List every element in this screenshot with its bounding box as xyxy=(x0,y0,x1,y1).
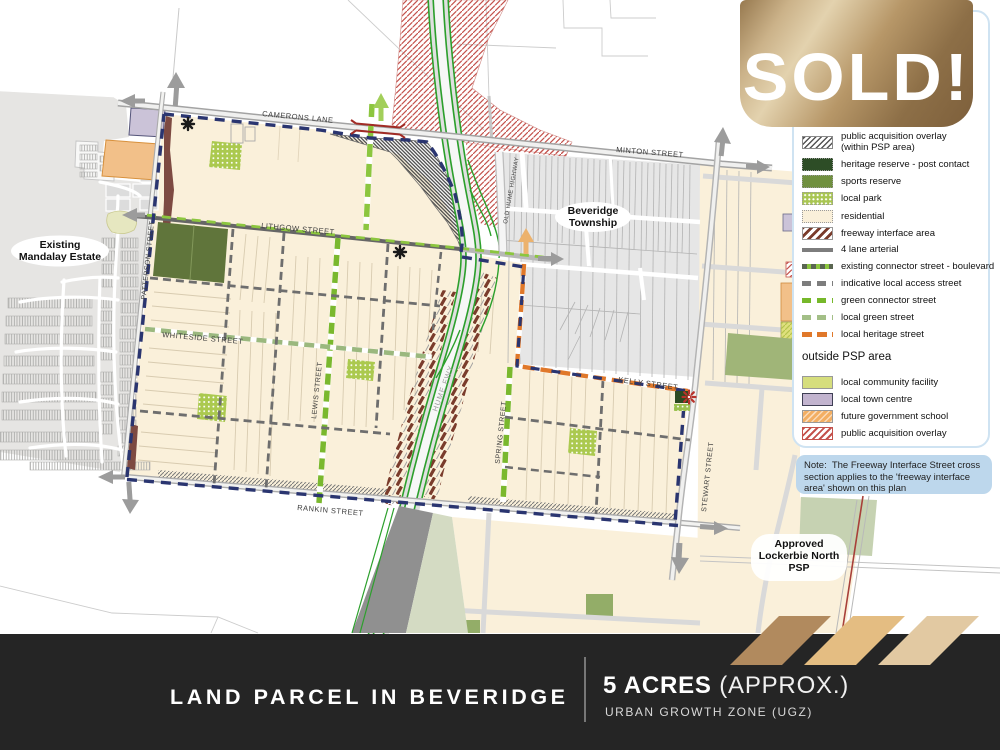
svg-text:Lockerbie North: Lockerbie North xyxy=(759,550,840,562)
svg-text:PSP: PSP xyxy=(788,562,809,574)
svg-text:Beveridge: Beveridge xyxy=(568,205,619,217)
svg-text:Existing: Existing xyxy=(40,239,81,251)
svg-text:Approved: Approved xyxy=(774,538,823,550)
svg-text:Mandalay Estate: Mandalay Estate xyxy=(19,251,101,263)
svg-text:Township: Township xyxy=(569,217,617,229)
svg-text:RANKIN STREET: RANKIN STREET xyxy=(297,503,364,518)
